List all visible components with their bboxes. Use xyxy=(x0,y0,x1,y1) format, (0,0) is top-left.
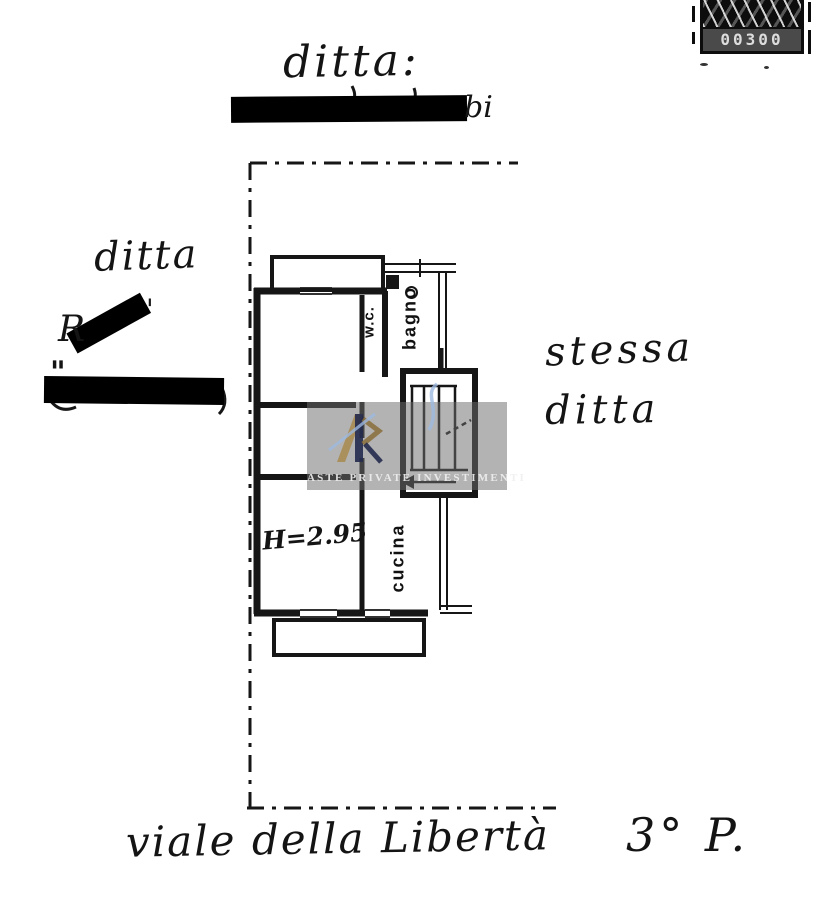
quote-mark: " xyxy=(50,358,66,388)
scan-speck xyxy=(700,63,708,66)
stessa-note-line2: ditta xyxy=(545,389,660,431)
stamp-perforation-mark xyxy=(692,6,695,22)
scanned-floorplan-document: ASTE PRIVATE INVESTIMENTI w.c. bagno cuc… xyxy=(0,0,822,900)
apostrophe-mark: ' xyxy=(146,296,154,324)
redacted-name-top xyxy=(231,95,467,123)
redacted-name-suffix: bi xyxy=(464,93,493,123)
stamp-perforation-mark xyxy=(808,30,811,54)
room-label-wc: w.c. xyxy=(361,306,378,338)
stamp-ornament xyxy=(703,0,801,27)
stamp-value: 00300 xyxy=(703,27,801,51)
balcony-top xyxy=(272,257,383,290)
floorplan-drawing xyxy=(0,0,822,900)
ditta-heading: ditta: xyxy=(283,39,420,85)
stamp-perforation-mark xyxy=(692,32,695,44)
stamp-perforation-mark xyxy=(808,2,811,22)
room-label-bagno: bagno xyxy=(400,286,421,350)
room-label-cucina: cucina xyxy=(388,523,409,592)
floor-number-note: 3° P. xyxy=(626,812,749,858)
revenue-stamp: 00300 xyxy=(700,0,804,54)
redacted-leak-letter: R xyxy=(58,312,85,348)
stessa-note-line1: stessa xyxy=(544,327,694,372)
balcony-bottom xyxy=(274,620,424,655)
ditta-left-heading: ditta xyxy=(93,234,199,278)
redacted-name-left-2 xyxy=(44,376,224,405)
street-name-note: viale della Libertà xyxy=(126,814,551,863)
elevator-shaft xyxy=(401,348,475,495)
scan-speck xyxy=(764,66,769,69)
